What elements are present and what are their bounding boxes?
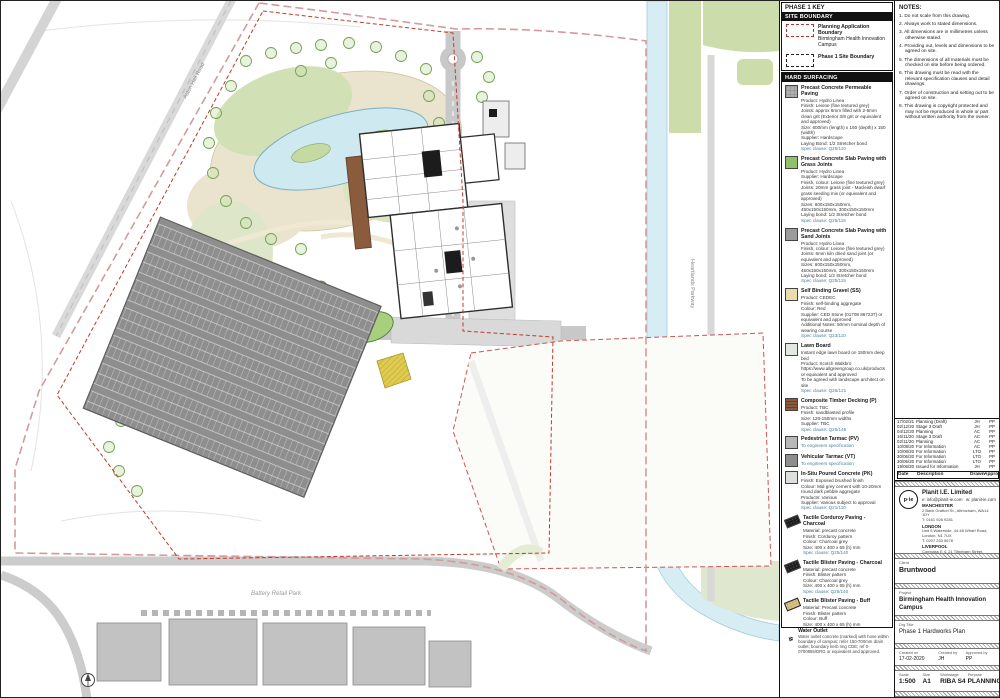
legend-item: Composite Timber Decking (P) Product: TB… xyxy=(782,395,892,434)
note-line: 2. Always work to stated dimensions. xyxy=(899,22,997,28)
firm-name: Planit I.E. Limited xyxy=(922,490,997,497)
project-name: Birmingham Health Innovation Campus xyxy=(899,596,997,612)
firm-website[interactable]: w: planit-ie.com xyxy=(966,497,996,502)
legend-item-name: In-Situ Poured Concrete (PK) xyxy=(801,471,889,477)
legend-item-name: Tactile Corduroy Paving - Charcoal xyxy=(803,515,889,527)
tactile-corduroy-charcoal-swatch xyxy=(784,515,801,529)
key-item-label: Planning Application Boundary xyxy=(818,24,888,36)
self-binding-gravel-swatch xyxy=(785,288,798,301)
legend-item-name: Precast Concrete Slab Paving with Grass … xyxy=(801,156,889,168)
key-item-planning-boundary: Planning Application BoundaryBirmingham … xyxy=(782,21,892,51)
scale-label: Scale xyxy=(899,673,923,678)
key-item-sub: Birmingham Health Innovation Campus xyxy=(818,36,885,48)
purpose-value: PLANNING xyxy=(968,678,997,686)
legend-item: Precast Concrete Slab Paving with Grass … xyxy=(782,154,892,226)
note-line: 8. This drawing is copyright protected a… xyxy=(899,104,997,121)
workstage-value: RIBA S4 xyxy=(940,678,967,686)
vehicular-tarmac-swatch xyxy=(785,454,798,467)
label-retail-park: Battery Retail Park xyxy=(251,591,302,597)
legend-detail-line: Joints: approx 6mm filled with 2-6mm cle… xyxy=(801,108,889,124)
titleblock-panel: NOTES: 1. Do not scale from this drawing… xyxy=(894,1,1000,698)
lawn-board-swatch xyxy=(785,343,798,356)
legend-detail-line: Spec clause: Q25/140 xyxy=(803,550,889,555)
created-on-label: Created on xyxy=(899,651,938,656)
client-name: Bruntwood xyxy=(899,566,997,575)
created-row: Created on17-02-2020 Created byJH Approv… xyxy=(895,649,1000,665)
office-liverpool: LIVERPOOLCompass E 4, 21 Tithebarn Stree… xyxy=(922,545,997,553)
legend-detail-line: Spec clause: Q25/145 xyxy=(801,427,876,432)
legend-item-name: Precast Concrete Permeable Paving xyxy=(801,85,889,97)
legend-detail-line: Spec clause: Q23/110 xyxy=(801,333,889,338)
note-line: 3. All dimensions are in millimetres unl… xyxy=(899,30,997,41)
water-outlet-icon xyxy=(788,628,794,650)
firm-email[interactable]: e: info@planit-ie.com xyxy=(922,497,962,502)
note-line: 4. Providing out, levels and dimensions … xyxy=(899,44,997,55)
note-line: 1. Do not scale from this drawing. xyxy=(899,14,997,20)
legend-item: Tactile Blister Paving - Buff Material: … xyxy=(782,596,892,628)
key-item-phase1-boundary: Phase 1 Site Boundary xyxy=(782,51,892,70)
black-dashed-boundary-symbol xyxy=(786,54,814,67)
legend-detail-line: Additional Notes: 50mm nominal depth of … xyxy=(801,322,889,333)
phase-1-key: PHASE 1 KEY SITE BOUNDARY Planning Appli… xyxy=(781,2,893,71)
legend-detail-line: Colour: Mid grey cement with 10-20mm rou… xyxy=(801,484,889,495)
legend-detail-line: Sizes: 600x150x150mm, 450x150x150mm, 300… xyxy=(801,202,889,213)
legend-detail-line: Instant edge lawn board on 150mm deep be… xyxy=(801,350,889,361)
client-field: Client Bruntwood xyxy=(895,559,1000,583)
size-value: A1 xyxy=(923,678,941,686)
timber-decking-swatch xyxy=(785,398,798,411)
legend-item: Lawn Board Instant edge lawn board on 15… xyxy=(782,341,892,396)
legend-item-name: Vehicular Tarmac (VT) xyxy=(801,454,855,460)
legend-detail-line: Joints: 20mm grass joint - Macleish dwar… xyxy=(801,185,889,201)
legend-detail-line: Supplier: CED Stone (01708 867237) or eq… xyxy=(801,312,889,323)
drawing-title: Phase 1 Hardworks Plan xyxy=(899,628,997,636)
legend-item-name: Precast Concrete Slab Paving with Sand J… xyxy=(801,228,889,240)
key-title: PHASE 1 KEY xyxy=(782,3,892,12)
legend-detail-line: Sizes: 600x150x150mm, 450x150x150mm, 300… xyxy=(801,262,889,273)
legend-item-name: Lawn Board xyxy=(801,343,889,349)
water-outlet-note: Water Outlet Water outlet concrete (mark… xyxy=(788,628,890,654)
legend-item: Self Binding Gravel (SS) Product: CEDEC … xyxy=(782,286,892,341)
legend-item-name: Self Binding Gravel (SS) xyxy=(801,288,889,294)
notes-box: NOTES: 1. Do not scale from this drawing… xyxy=(895,1,1000,419)
drawing-sheet: Aston Hall Road Heartlands Parkway Batte… xyxy=(0,0,1000,698)
firm-block: p·ie Planit I.E. Limited e: info@planit-… xyxy=(895,487,1000,553)
sand-joint-paving-swatch xyxy=(785,228,798,241)
label-heartlands-parkway: Heartlands Parkway xyxy=(689,259,695,308)
tactile-blister-buff-swatch xyxy=(784,598,801,612)
legend-item: Precast Concrete Permeable Paving Produc… xyxy=(782,82,892,154)
legend-detail-line: Size: 600mm (length) x 150 (depth) x 150… xyxy=(801,125,889,136)
approved-by-label: Approved by xyxy=(966,651,997,656)
revision-row: 19/06/20Issued for InformationJHPP xyxy=(897,464,999,469)
legend-panel: PHASE 1 KEY SITE BOUNDARY Planning Appli… xyxy=(779,1,894,698)
legend-detail-line: https://www.allgreengroup.co.uk/products… xyxy=(801,366,889,377)
legend-detail-line: To engineers specification xyxy=(801,443,859,448)
scale-value: 1:500 xyxy=(899,678,923,686)
approved-by-value: PP xyxy=(966,656,997,662)
size-label: Size xyxy=(923,673,941,678)
drawing-title-field: Drg Title Phase 1 Hardworks Plan xyxy=(895,621,1000,643)
future-phase-field xyxy=(453,333,771,569)
legend-detail-line: Spec clause: Q25/121 xyxy=(801,388,889,393)
workstage-label: Workstage xyxy=(940,673,967,678)
legend-item: Vehicular Tarmac (VT) To engineers speci… xyxy=(782,451,892,469)
office-manchester: MANCHESTER2 Back Grafton St., Altrincham… xyxy=(922,504,997,523)
revision-table: 01/03/21PlanningJHPP 17/02/21Planning (D… xyxy=(895,419,1000,481)
permeable-paving-swatch xyxy=(785,85,798,98)
grass-joint-paving-swatch xyxy=(785,156,798,169)
project-field: Project Birmingham Health Innovation Cam… xyxy=(895,589,1000,615)
legend-detail-line: Spec clause: Q25/115 xyxy=(801,278,889,283)
legend-item: Tactile Corduroy Paving - Charcoal Mater… xyxy=(782,513,892,558)
pedestrian-tarmac-swatch xyxy=(785,436,798,449)
key-item-label: Phase 1 Site Boundary xyxy=(818,54,874,60)
legend-detail-line: Spec clause: Q21/110 xyxy=(801,505,889,510)
insitu-concrete-swatch xyxy=(785,471,798,484)
tactile-blister-charcoal-swatch xyxy=(784,559,801,573)
hard-surfacing-header: HARD SURFACING xyxy=(782,73,892,82)
purpose-label: Purpose xyxy=(968,673,997,678)
legend-detail-line: To engineers specification xyxy=(801,461,855,466)
planit-logo: p·ie xyxy=(899,490,918,509)
note-line: 7. Order of construction and setting out… xyxy=(899,91,997,102)
legend-detail-line: Spec clause: Q25/110 xyxy=(801,146,889,151)
site-boundary-header: SITE BOUNDARY xyxy=(782,12,892,21)
legend-item: In-Situ Poured Concrete (PK) Finish: Exp… xyxy=(782,469,892,513)
legend-item-name: Composite Timber Decking (P) xyxy=(801,398,876,404)
legend-item: Precast Concrete Slab Paving with Sand J… xyxy=(782,225,892,286)
legend-item-name: Tactile Blister Paving - Charcoal xyxy=(803,560,882,566)
legend-detail-line: Joints: 6mm kiln dried sand joint (or eq… xyxy=(801,251,889,262)
legend-detail-line: Spec clause: Q25/115 xyxy=(801,218,889,223)
legend-detail-line: To be agreed with landscape architect on… xyxy=(801,377,889,388)
scale-row: Scale1:500 SizeA1 WorkstageRIBA S4 Purpo… xyxy=(895,671,1000,691)
legend-item-name: Pedestrian Tarmac (PV) xyxy=(801,436,859,442)
north-arrow-icon xyxy=(82,674,95,687)
office-london: LONDONUnit 5 Waterside, 44-48 Wharf Road… xyxy=(922,525,997,544)
notes-title: NOTES: xyxy=(899,5,997,11)
created-on-value: 17-02-2020 xyxy=(899,656,938,662)
created-by-label: Created by xyxy=(938,651,965,656)
legend-item-name: Tactile Blister Paving - Buff xyxy=(803,598,870,604)
created-by-value: JH xyxy=(938,656,965,662)
legend-detail-line: Spec clause: Q25/140 xyxy=(803,589,882,594)
red-dashed-boundary-symbol xyxy=(786,24,814,37)
site-plan-map: Aston Hall Road Heartlands Parkway Batte… xyxy=(1,1,779,698)
note-line: 5. The dimensions of all materials must … xyxy=(899,58,997,69)
legend-item: Pedestrian Tarmac (PV) To engineers spec… xyxy=(782,434,892,452)
water-outlet-text: Water outlet concrete (marked) with hose… xyxy=(798,634,890,654)
hard-surfacing-legend: HARD SURFACING Precast Concrete Permeabl… xyxy=(781,72,893,628)
revision-table-header: DateDescriptionDrawnApproved xyxy=(897,471,999,480)
note-line: 6. This drawing must be read with the re… xyxy=(899,71,997,88)
legend-item: Tactile Blister Paving - Charcoal Materi… xyxy=(782,557,892,596)
